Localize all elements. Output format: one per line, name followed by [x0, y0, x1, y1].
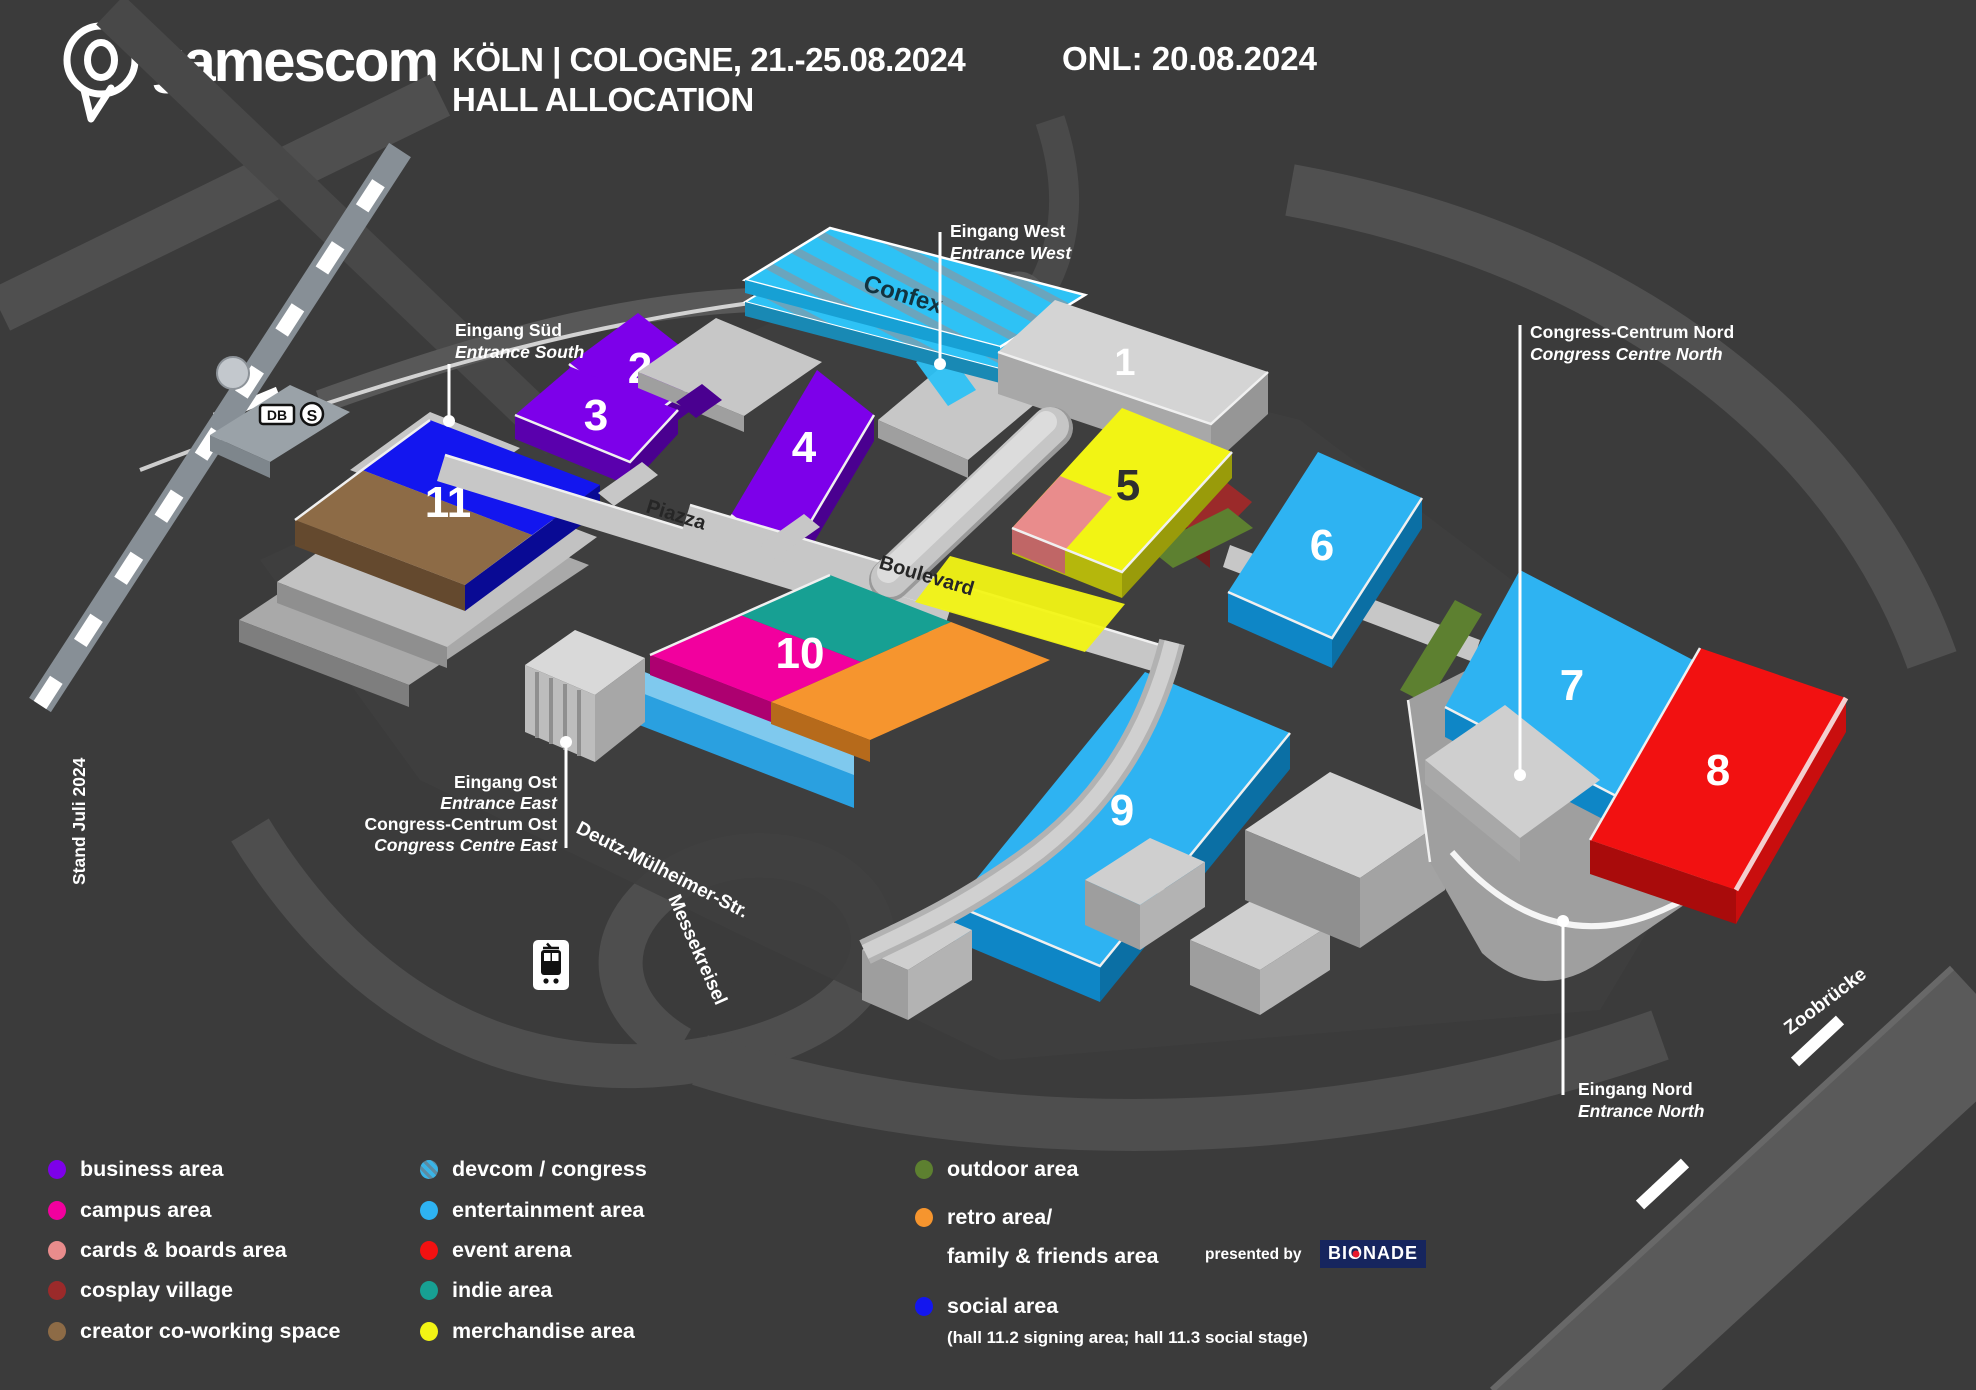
legend-label: merchandise area: [452, 1319, 635, 1344]
legend-label: cosplay village: [80, 1278, 233, 1303]
legend-item-entertainment: entertainment area: [420, 1198, 644, 1223]
social-area-note: (hall 11.2 signing area; hall 11.3 socia…: [947, 1328, 1308, 1348]
entrance-south-label-de: Eingang Süd: [455, 320, 562, 340]
legend-item-campus: campus area: [48, 1198, 211, 1223]
hall-3-number: 3: [584, 391, 608, 440]
legend-label: outdoor area: [947, 1157, 1078, 1182]
legend-item-merchandise: merchandise area: [420, 1319, 635, 1344]
cards-boards-dot-icon: [48, 1241, 66, 1260]
gamescom-hall-allocation-map: { "header": { "logo_text": "gamescom", "…: [0, 0, 1976, 1390]
legend-item-outdoor: outdoor area: [915, 1157, 1078, 1182]
legend-label: creator co-working space: [80, 1319, 340, 1344]
creator-dot-icon: [48, 1322, 66, 1341]
zoobruecke-bridge: [1492, 968, 1976, 1390]
hall-8-number: 8: [1706, 746, 1730, 795]
cosplay-dot-icon: [48, 1281, 66, 1300]
hall-4-number: 4: [792, 423, 817, 472]
legend-item-social: social area: [915, 1294, 1058, 1319]
entrance-east-label-4: Congress Centre East: [374, 835, 558, 855]
entrance-south-label-en: Entrance South: [455, 342, 584, 362]
brand-part-o: O: [1348, 1243, 1363, 1264]
legend-label: cards & boards area: [80, 1238, 287, 1263]
hall-6-number: 6: [1310, 521, 1334, 570]
tram-icon: [533, 940, 569, 990]
legend-item-business: business area: [48, 1157, 223, 1182]
entrance-east-label-1: Eingang Ost: [454, 772, 557, 792]
entertainment-dot-icon: [420, 1201, 438, 1220]
merchandise-dot-icon: [420, 1322, 438, 1341]
entrance-west-label-de: Eingang West: [950, 221, 1066, 241]
devcom-dot-icon: [420, 1160, 438, 1179]
stand-note: Stand Juli 2024: [69, 757, 89, 885]
legend-item-retro: retro area/: [915, 1205, 1052, 1230]
retro-dot-icon: [915, 1208, 933, 1227]
legend-item-cards-boards: cards & boards area: [48, 1238, 287, 1263]
social-dot-icon: [915, 1297, 933, 1316]
hall-10-number: 10: [776, 629, 825, 678]
brand-part: BI: [1328, 1243, 1348, 1263]
brand-part: NADE: [1363, 1243, 1418, 1263]
legend-label: retro area/: [947, 1205, 1052, 1230]
business-dot-icon: [48, 1160, 66, 1179]
legend-item-cosplay: cosplay village: [48, 1278, 233, 1303]
bionade-logo: BIONADE: [1320, 1240, 1426, 1268]
station-dome: [217, 357, 249, 389]
hall-5-number: 5: [1116, 461, 1140, 510]
legend-item-creator: creator co-working space: [48, 1319, 340, 1344]
entrance-west-label-en: Entrance West: [950, 243, 1072, 263]
legend-label: indie area: [452, 1278, 552, 1303]
legend-label: devcom / congress: [452, 1157, 647, 1182]
entrance-east-label-3: Congress-Centrum Ost: [364, 814, 557, 834]
hall-7-number: 7: [1560, 661, 1584, 710]
legend-item-event-arena: event arena: [420, 1238, 572, 1263]
legend-item-retro-line2: family & friends area: [947, 1244, 1159, 1269]
campus-dot-icon: [48, 1201, 66, 1220]
sbahn-icon-text: S: [307, 408, 318, 425]
legend-label: campus area: [80, 1198, 211, 1223]
legend-label: event arena: [452, 1238, 572, 1263]
congress-north-label-en: Congress Centre North: [1530, 344, 1723, 364]
legend-label: entertainment area: [452, 1198, 644, 1223]
presented-by-text: presented by: [1205, 1246, 1301, 1264]
legend-label: business area: [80, 1157, 223, 1182]
entrance-north-label-de: Eingang Nord: [1578, 1079, 1693, 1099]
congress-north-label-de: Congress-Centrum Nord: [1530, 322, 1734, 342]
outdoor-dot-icon: [915, 1160, 933, 1179]
event-arena-dot-icon: [420, 1241, 438, 1260]
indie-dot-icon: [420, 1281, 438, 1300]
legend-label: social area: [947, 1294, 1058, 1319]
legend-item-indie: indie area: [420, 1278, 552, 1303]
legend-item-devcom: devcom / congress: [420, 1157, 647, 1182]
hall-1-number: 1: [1114, 342, 1135, 384]
legend-label: family & friends area: [947, 1244, 1159, 1269]
entrance-north-label-en: Entrance North: [1578, 1101, 1704, 1121]
entrance-east-label-2: Entrance East: [440, 793, 558, 813]
db-icon-text: DB: [267, 407, 287, 423]
